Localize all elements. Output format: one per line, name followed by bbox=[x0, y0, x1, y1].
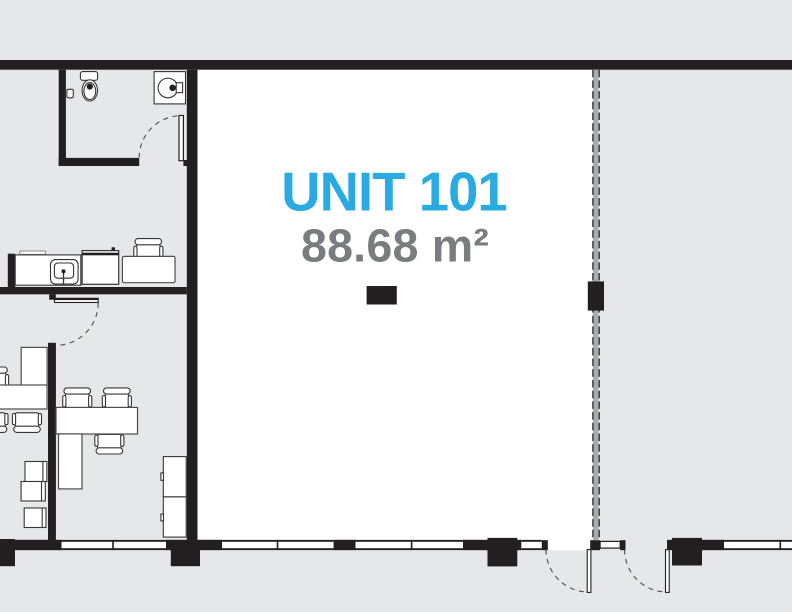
svg-text:UNIT 101: UNIT 101 bbox=[281, 161, 507, 222]
svg-text:88.68 m²: 88.68 m² bbox=[301, 220, 489, 272]
